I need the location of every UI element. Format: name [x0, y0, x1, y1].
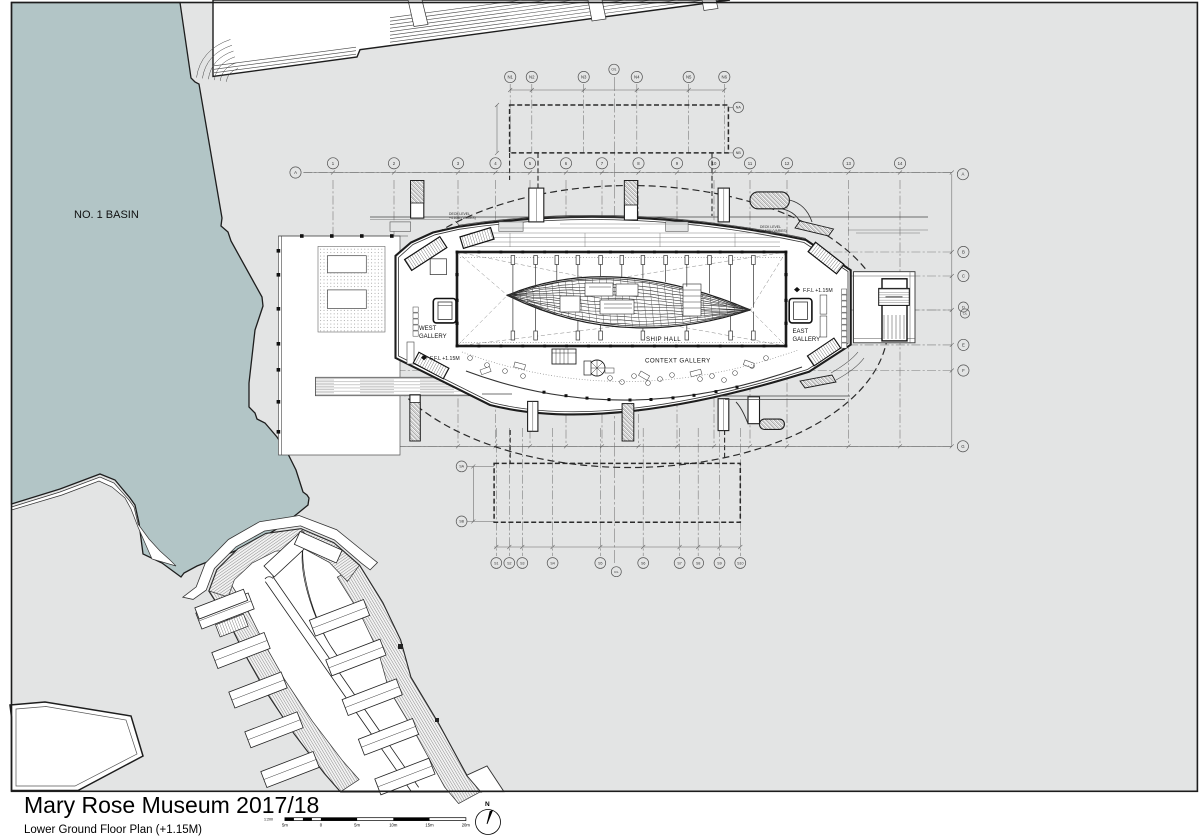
svg-text:10: 10 — [712, 161, 717, 166]
svg-text:NB: NB — [736, 151, 742, 155]
svg-text:S2: S2 — [507, 561, 511, 565]
svg-text:N5: N5 — [686, 75, 692, 80]
svg-text:E: E — [962, 342, 965, 347]
svg-text:S7: S7 — [677, 561, 681, 565]
svg-text:N: N — [485, 801, 490, 808]
svg-text:EAST: EAST — [793, 329, 809, 335]
svg-text:S9: S9 — [717, 561, 721, 565]
svg-text:15m: 15m — [425, 823, 434, 828]
svg-text:Mary Rose Museum 2017/18: Mary Rose Museum 2017/18 — [24, 792, 319, 818]
svg-text:F.F.L +1.15M: F.F.L +1.15M — [803, 288, 833, 294]
svg-text:SB: SB — [459, 520, 464, 524]
svg-text:10m: 10m — [389, 823, 398, 828]
svg-text:S10: S10 — [737, 561, 743, 565]
svg-text:13: 13 — [846, 161, 851, 166]
svg-text:B: B — [962, 250, 965, 255]
svg-text:+4.60M (VARIES): +4.60M (VARIES) — [760, 229, 787, 233]
svg-text:N3: N3 — [581, 75, 587, 80]
svg-text:1:200: 1:200 — [264, 818, 273, 822]
svg-text:Lower Ground Floor Plan (+1.15: Lower Ground Floor Plan (+1.15M) — [24, 824, 202, 836]
svg-text:N6: N6 — [722, 75, 728, 80]
svg-text:A: A — [961, 172, 964, 177]
svg-text:S1: S1 — [494, 561, 498, 565]
svg-text:S3: S3 — [520, 561, 524, 565]
svg-text:N4: N4 — [634, 75, 640, 80]
svg-text:O/L: O/L — [611, 68, 616, 72]
svg-text:14: 14 — [898, 161, 903, 166]
svg-text:F: F — [962, 368, 965, 373]
svg-text:S6: S6 — [641, 561, 645, 565]
svg-text:20m: 20m — [462, 823, 471, 828]
svg-text:11: 11 — [748, 161, 753, 166]
svg-text:SA: SA — [459, 465, 464, 469]
svg-text:5m: 5m — [354, 823, 360, 828]
svg-text:SHIP HALL: SHIP HALL — [646, 336, 681, 343]
svg-text:C/L: C/L — [963, 312, 968, 316]
svg-text:C/L: C/L — [614, 570, 619, 574]
svg-text:5m: 5m — [282, 823, 288, 828]
svg-text:NO. 1 BASIN: NO. 1 BASIN — [74, 209, 139, 221]
svg-text:C: C — [962, 274, 965, 279]
svg-text:12: 12 — [785, 161, 790, 166]
svg-text:A: A — [294, 170, 297, 175]
svg-text:CONTEXT GALLERY: CONTEXT GALLERY — [645, 358, 711, 365]
svg-text:N2: N2 — [529, 75, 535, 80]
svg-text:GALLERY: GALLERY — [793, 337, 821, 343]
svg-text:S8: S8 — [696, 561, 700, 565]
svg-text:N1: N1 — [507, 75, 513, 80]
svg-text:F.F.L +1.15M: F.F.L +1.15M — [430, 356, 460, 362]
svg-text:S5: S5 — [598, 561, 602, 565]
svg-text:S4: S4 — [550, 561, 554, 565]
svg-text:NA: NA — [736, 106, 742, 110]
svg-text:GALLERY: GALLERY — [419, 334, 447, 340]
svg-text:+4.60M (VARIES): +4.60M (VARIES) — [449, 216, 476, 220]
svg-text:WEST: WEST — [419, 326, 437, 332]
